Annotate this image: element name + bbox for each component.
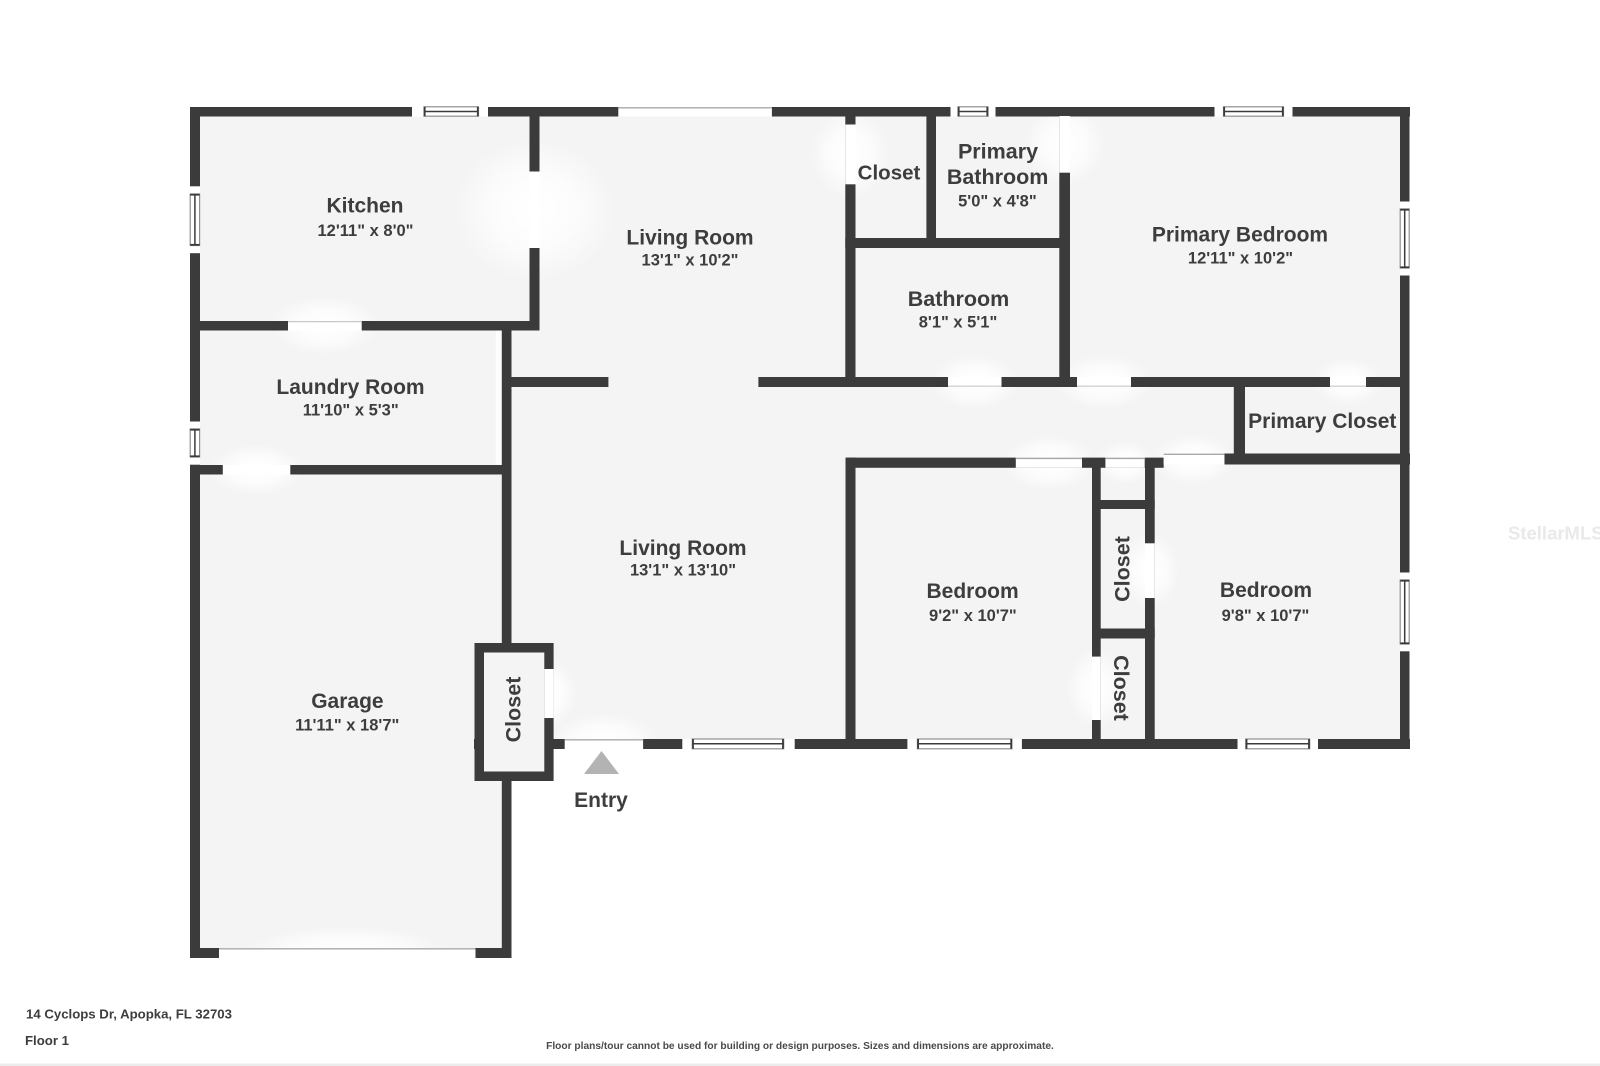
svg-text:Living Room: Living Room xyxy=(619,537,746,560)
svg-text:Laundry Room: Laundry Room xyxy=(276,376,424,399)
svg-text:13'1" x 10'2": 13'1" x 10'2" xyxy=(642,252,739,270)
svg-text:5'0" x 4'8": 5'0" x 4'8" xyxy=(958,192,1037,210)
svg-text:Floor 1: Floor 1 xyxy=(25,1033,69,1048)
svg-text:Bedroom: Bedroom xyxy=(927,580,1019,603)
svg-text:Bedroom: Bedroom xyxy=(1220,579,1312,602)
svg-text:Bathroom: Bathroom xyxy=(908,287,1010,311)
svg-text:Primary: Primary xyxy=(958,139,1038,163)
svg-text:Closet: Closet xyxy=(858,162,921,185)
svg-text:Garage: Garage xyxy=(311,690,383,713)
svg-text:13'1" x 13'10": 13'1" x 13'10" xyxy=(630,562,736,580)
svg-text:Living Room: Living Room xyxy=(626,227,753,250)
svg-text:Primary Closet: Primary Closet xyxy=(1248,410,1396,433)
svg-text:Closet: Closet xyxy=(502,677,526,743)
svg-text:Entry: Entry xyxy=(574,789,628,812)
svg-text:12'11" x 10'2": 12'11" x 10'2" xyxy=(1188,250,1293,268)
svg-text:Closet: Closet xyxy=(1109,655,1133,721)
svg-text:Primary Bedroom: Primary Bedroom xyxy=(1152,224,1328,247)
svg-text:11'11" x 18'7": 11'11" x 18'7" xyxy=(295,717,399,735)
svg-text:12'11" x 8'0": 12'11" x 8'0" xyxy=(318,222,414,240)
svg-text:9'8" x 10'7": 9'8" x 10'7" xyxy=(1222,607,1310,625)
svg-text:Floor plans/tour cannot be use: Floor plans/tour cannot be used for buil… xyxy=(546,1041,1054,1052)
svg-text:Bathroom: Bathroom xyxy=(947,165,1049,189)
svg-text:11'10" x 5'3": 11'10" x 5'3" xyxy=(303,402,399,420)
svg-text:Closet: Closet xyxy=(1111,536,1135,602)
svg-text:9'2" x 10'7": 9'2" x 10'7" xyxy=(929,607,1017,625)
svg-text:StellarMLS: StellarMLS xyxy=(1508,523,1600,544)
svg-text:Kitchen: Kitchen xyxy=(326,195,403,218)
svg-text:8'1" x 5'1": 8'1" x 5'1" xyxy=(919,314,998,332)
svg-text:14 Cyclops Dr, Apopka, FL 3270: 14 Cyclops Dr, Apopka, FL 32703 xyxy=(26,1007,232,1022)
